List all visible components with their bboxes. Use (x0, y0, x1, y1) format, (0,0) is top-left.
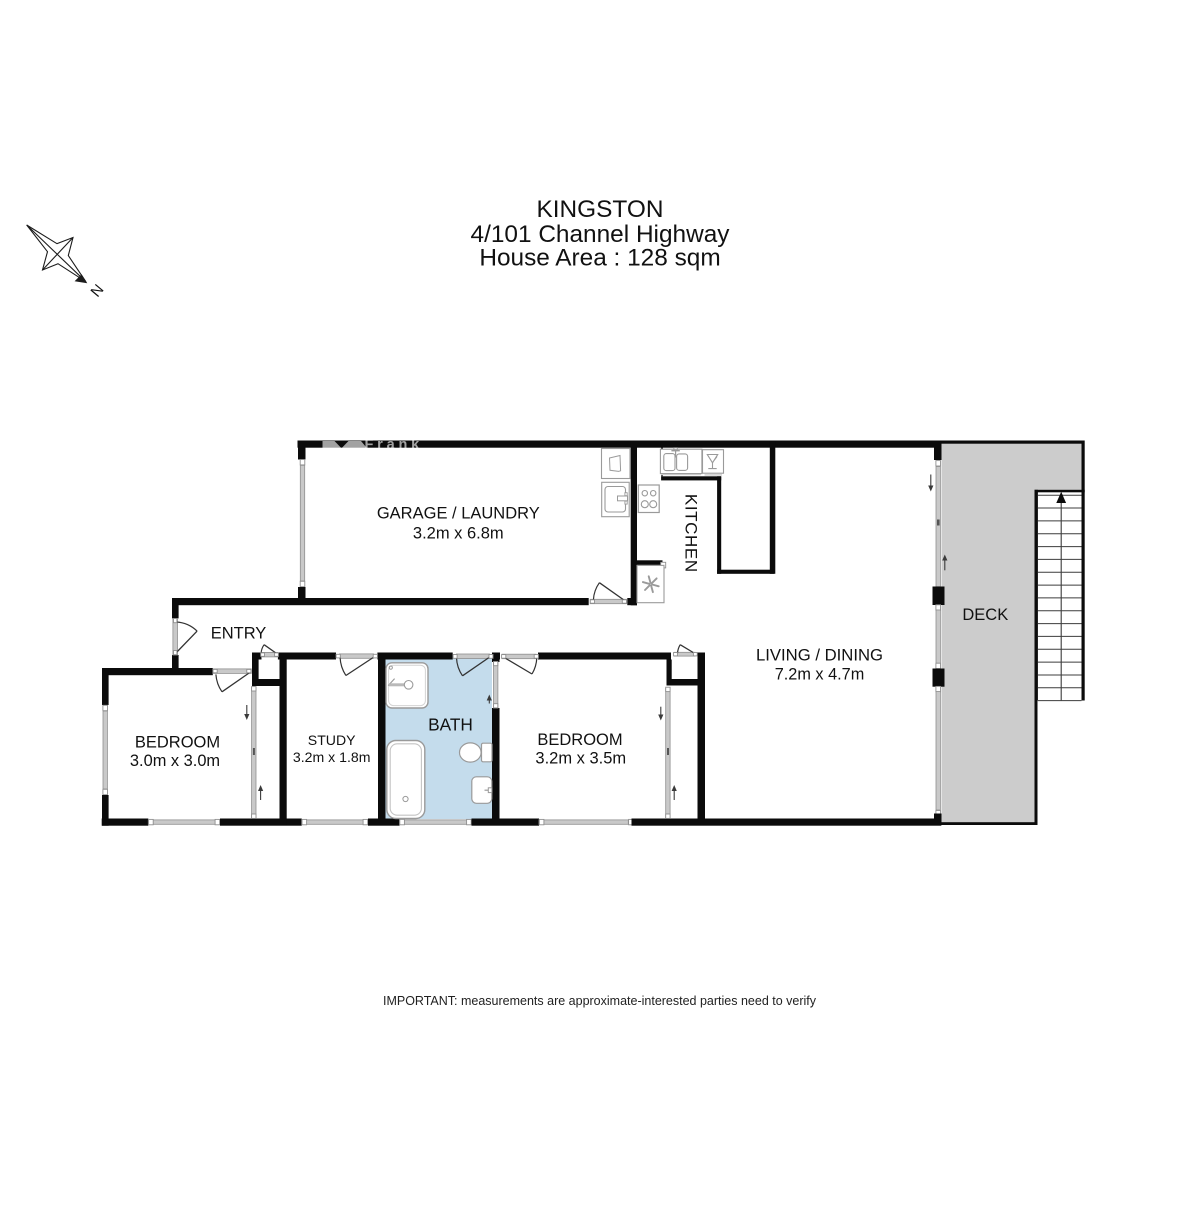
svg-text:GARAGE / LAUNDRY: GARAGE / LAUNDRY (377, 504, 540, 522)
svg-text:DECK: DECK (962, 606, 1008, 624)
svg-text:Frank: Frank (365, 437, 424, 453)
svg-text:BEDROOM: BEDROOM (135, 734, 220, 752)
svg-text:LIVING / DINING: LIVING / DINING (756, 646, 883, 665)
svg-text:KITCHEN: KITCHEN (681, 494, 700, 573)
svg-text:KINGSTON: KINGSTON (537, 196, 664, 223)
svg-text:3.2m x 3.5m: 3.2m x 3.5m (535, 749, 626, 767)
svg-text:3.2m x 1.8m: 3.2m x 1.8m (293, 749, 371, 765)
svg-text:ENTRY: ENTRY (211, 625, 267, 643)
svg-text:STUDY: STUDY (308, 732, 356, 748)
svg-text:3.2m x 6.8m: 3.2m x 6.8m (413, 524, 504, 542)
svg-text:House Area : 128 sqm: House Area : 128 sqm (479, 245, 720, 272)
svg-text:7.2m x 4.7m: 7.2m x 4.7m (775, 666, 865, 684)
svg-text:BEDROOM: BEDROOM (537, 731, 622, 749)
svg-text:BATH: BATH (428, 715, 473, 735)
svg-text:3.0m x 3.0m: 3.0m x 3.0m (130, 752, 220, 770)
svg-text:IMPORTANT: measurements are ap: IMPORTANT: measurements are approximate-… (383, 994, 817, 1008)
